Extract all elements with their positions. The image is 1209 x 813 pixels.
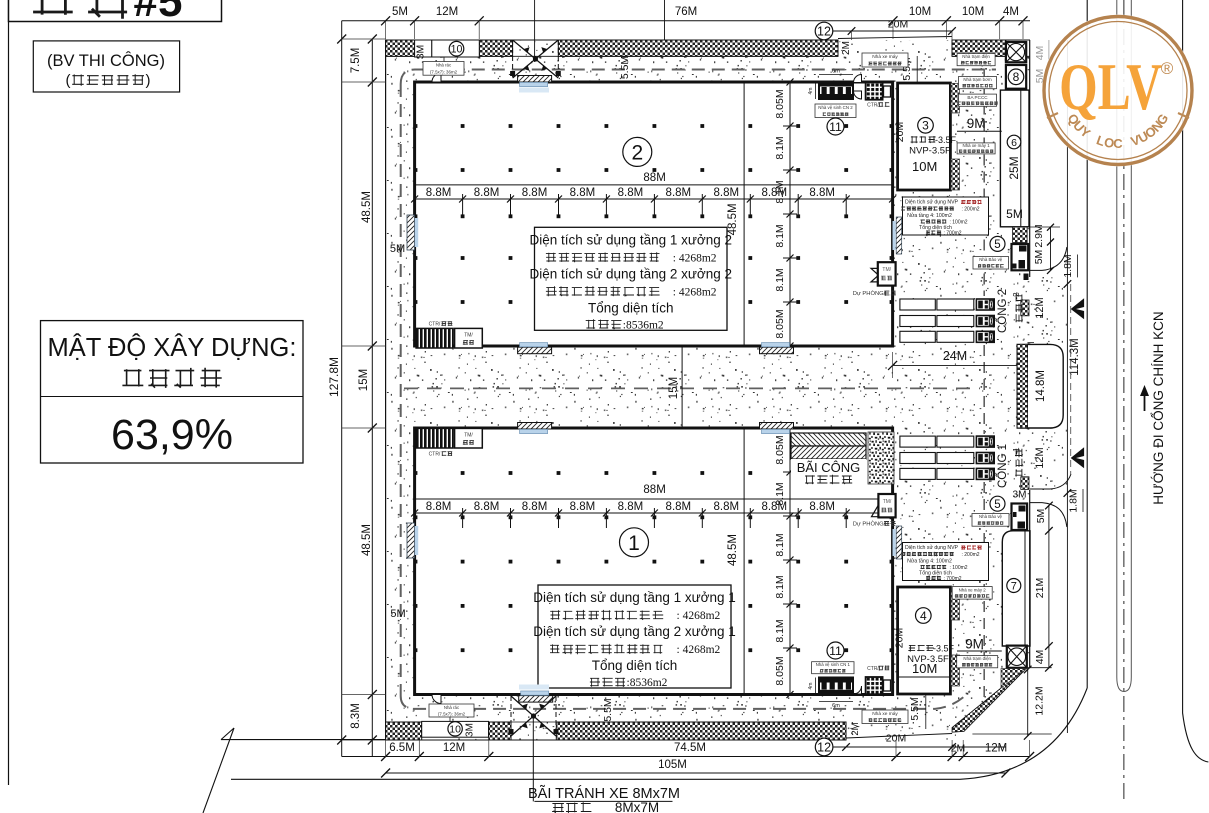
svg-text:8.8M: 8.8M <box>666 501 692 513</box>
svg-text:Diện tích sử dụng NVP: Diện tích sử dụng NVP <box>905 544 959 551</box>
svg-text:21M: 21M <box>1034 578 1046 598</box>
svg-text:Diện tích sử dụng tầng 1 xưởng: Diện tích sử dụng tầng 1 xưởng 1 <box>533 590 736 605</box>
svg-text:48.5M: 48.5M <box>727 534 739 566</box>
svg-text:10M: 10M <box>912 661 937 676</box>
svg-text:10: 10 <box>449 725 461 736</box>
svg-text:BÃI CÔNG: BÃI CÔNG <box>797 460 861 475</box>
svg-text:3M: 3M <box>1013 490 1027 501</box>
svg-text:5: 5 <box>994 499 1000 511</box>
svg-text:12M: 12M <box>985 743 1007 755</box>
svg-text:Nhà trạm điện: Nhà trạm điện <box>962 54 990 59</box>
svg-text:8.1M: 8.1M <box>774 533 786 556</box>
svg-text:12M: 12M <box>436 6 458 18</box>
svg-text:C: C <box>1113 136 1123 151</box>
svg-text:105M: 105M <box>658 759 687 771</box>
svg-text:48.5M: 48.5M <box>727 203 739 235</box>
svg-text:12M: 12M <box>1034 447 1046 468</box>
svg-text:5.5M: 5.5M <box>602 698 614 721</box>
svg-text:(BV THI CÔNG): (BV THI CÔNG) <box>47 51 165 70</box>
svg-text:15M: 15M <box>358 369 370 391</box>
svg-text:20M: 20M <box>894 628 906 648</box>
svg-text:Nhà vệ sinh CN 2: Nhà vệ sinh CN 2 <box>818 105 853 110</box>
svg-text:10M: 10M <box>909 6 931 18</box>
svg-text:25M: 25M <box>1007 156 1021 179</box>
svg-text:8.05M: 8.05M <box>774 435 786 464</box>
svg-text:TM/: TM/ <box>882 267 891 273</box>
svg-text:Diện tích sử dụng tầng 2 xưởng: Diện tích sử dụng tầng 2 xưởng 1 <box>533 624 736 639</box>
svg-text:8.8M: 8.8M <box>426 501 452 513</box>
svg-text:: 700m2: : 700m2 <box>944 576 962 582</box>
svg-text:12M: 12M <box>443 742 465 754</box>
svg-text:8.1M: 8.1M <box>774 575 786 598</box>
svg-text:5.5M: 5.5M <box>619 56 631 79</box>
svg-text:10M: 10M <box>912 159 937 174</box>
svg-text:(7.5x7): 36m2: (7.5x7): 36m2 <box>430 69 458 74</box>
svg-text:CTR/: CTR/ <box>867 666 879 672</box>
svg-text:8Mx7M: 8Mx7M <box>615 800 659 813</box>
svg-text:11: 11 <box>829 644 842 658</box>
svg-text:76M: 76M <box>675 6 697 18</box>
svg-text:6m: 6m <box>832 69 840 75</box>
svg-text:8.1M: 8.1M <box>774 180 786 203</box>
svg-text:Nhà xe máy 1: Nhà xe máy 1 <box>963 143 991 148</box>
svg-text:5M: 5M <box>1035 509 1047 524</box>
svg-text:Nhà Bảo vệ: Nhà Bảo vệ <box>979 257 1003 262</box>
svg-text:3: 3 <box>922 119 929 133</box>
svg-text:24M: 24M <box>943 349 967 363</box>
svg-text:12: 12 <box>817 741 831 755</box>
svg-text:9M: 9M <box>967 116 986 131</box>
svg-text:: 200m2: : 200m2 <box>962 552 980 558</box>
svg-text:8.8M: 8.8M <box>618 501 644 513</box>
svg-text::8536m2: :8536m2 <box>623 319 664 331</box>
svg-text:Nhà xe máy: Nhà xe máy <box>872 54 898 60</box>
svg-text:Nhà rác: Nhà rác <box>444 705 460 710</box>
svg-text:: 4268m2: : 4268m2 <box>673 286 717 298</box>
svg-text:1: 1 <box>628 532 640 555</box>
svg-text:8.1M: 8.1M <box>774 268 786 291</box>
svg-text:12M: 12M <box>1034 297 1046 318</box>
svg-text:8.8M: 8.8M <box>666 187 692 199</box>
svg-text:8.8M: 8.8M <box>618 187 644 199</box>
svg-text:-1: -1 <box>1012 447 1021 455</box>
svg-text:12: 12 <box>817 25 831 39</box>
svg-text:Dự PHÒNG/: Dự PHÒNG/ <box>853 290 886 297</box>
svg-text:2.9M: 2.9M <box>1033 224 1045 247</box>
svg-text:2: 2 <box>631 141 643 164</box>
svg-text:88M: 88M <box>643 172 665 184</box>
svg-text:5: 5 <box>994 239 1000 251</box>
svg-text:12.2M: 12.2M <box>1034 686 1046 715</box>
svg-text:3M: 3M <box>465 723 476 737</box>
svg-text:(: ( <box>66 72 71 89</box>
svg-text:: 4268m2: : 4268m2 <box>677 644 721 656</box>
svg-text:1.8M: 1.8M <box>1068 489 1080 512</box>
svg-text:Diện tích sử dụng tầng 2 xưởng: Diện tích sử dụng tầng 2 xưởng 2 <box>529 266 732 281</box>
svg-text:8.8M: 8.8M <box>522 187 548 199</box>
svg-text:Nhà xe máy: Nhà xe máy <box>872 711 898 717</box>
svg-text:8.8M: 8.8M <box>474 501 500 513</box>
svg-text:CỔNG 1: CỔNG 1 <box>996 444 1009 488</box>
svg-text:4M: 4M <box>1034 650 1046 665</box>
svg-text:: 4268m2: : 4268m2 <box>677 610 721 622</box>
svg-text:5M: 5M <box>1033 250 1045 265</box>
svg-text:Nhà vệ sinh CN 1: Nhà vệ sinh CN 1 <box>816 662 851 667</box>
svg-text:8.05M: 8.05M <box>774 309 786 338</box>
svg-text:4M: 4M <box>1003 6 1019 18</box>
svg-text:Nhà xe máy 2: Nhà xe máy 2 <box>959 587 987 592</box>
svg-text:8.3M: 8.3M <box>350 703 362 729</box>
svg-text:4M: 4M <box>1034 46 1046 61</box>
svg-text:CTR/: CTR/ <box>429 322 441 328</box>
svg-text:48.5M: 48.5M <box>361 191 373 223</box>
svg-text:: 700m2: : 700m2 <box>944 231 962 237</box>
svg-text:20M: 20M <box>886 733 906 745</box>
svg-text:Nhà trạm điện: Nhà trạm điện <box>963 656 991 661</box>
svg-text:8.1M: 8.1M <box>774 619 786 642</box>
svg-text:6: 6 <box>1011 137 1017 149</box>
svg-text:Nửa tầng 4: 100m2: Nửa tầng 4: 100m2 <box>907 212 952 219</box>
svg-text:8.8M: 8.8M <box>426 187 452 199</box>
svg-text:8.8M: 8.8M <box>714 501 740 513</box>
svg-text:TM/: TM/ <box>883 499 892 505</box>
svg-text:HƯỚNG ĐI CỔNG CHÍNH KCN: HƯỚNG ĐI CỔNG CHÍNH KCN <box>1151 311 1166 504</box>
svg-text:6.5M: 6.5M <box>389 742 415 754</box>
svg-text:Diện tích sử dụng tầng 1 xưởng: Diện tích sử dụng tầng 1 xưởng 2 <box>529 232 732 247</box>
svg-text:8.8M: 8.8M <box>522 501 548 513</box>
svg-text:74.5M: 74.5M <box>674 742 706 754</box>
svg-text:5M: 5M <box>390 243 405 255</box>
svg-text:11: 11 <box>829 120 842 134</box>
svg-text:5M: 5M <box>392 6 408 18</box>
svg-text:CTR/: CTR/ <box>429 452 441 458</box>
svg-text:8: 8 <box>1013 70 1020 84</box>
svg-text:8.8M: 8.8M <box>570 501 596 513</box>
svg-text:2M: 2M <box>951 743 966 755</box>
svg-text:6m: 6m <box>832 703 840 709</box>
svg-text:Tổng diện tích: Tổng diện tích <box>592 658 678 673</box>
svg-text:): ) <box>146 72 151 89</box>
svg-text:NVP-3.5F: NVP-3.5F <box>909 146 951 157</box>
svg-text:8.8M: 8.8M <box>809 187 835 199</box>
svg-text:Dự PHÒNG/: Dự PHÒNG/ <box>853 520 886 527</box>
svg-text:4m: 4m <box>808 683 814 690</box>
svg-text:-3.5F: -3.5F <box>933 644 955 654</box>
svg-text:7.5M: 7.5M <box>350 48 362 74</box>
svg-text:8.8M: 8.8M <box>474 187 500 199</box>
svg-text:127.8M: 127.8M <box>327 357 341 397</box>
svg-text:: 100m2: : 100m2 <box>950 565 968 571</box>
svg-text:8.05M: 8.05M <box>774 89 786 118</box>
svg-text:2M: 2M <box>841 41 852 55</box>
svg-text:: 4268m2: : 4268m2 <box>673 252 717 264</box>
svg-text:Diện tích sử dụng NVP: Diện tích sử dụng NVP <box>905 199 959 206</box>
svg-text:1.8M: 1.8M <box>1062 254 1074 277</box>
svg-text:Nhà trạm bơm: Nhà trạm bơm <box>963 77 992 82</box>
svg-text:TM/: TM/ <box>464 332 473 338</box>
svg-text:: 200m2: : 200m2 <box>962 207 980 213</box>
svg-text:8.1M: 8.1M <box>774 224 786 247</box>
svg-text:3M: 3M <box>415 45 427 60</box>
svg-text:#5: #5 <box>134 0 183 26</box>
svg-text:7: 7 <box>1011 580 1017 592</box>
svg-text:: 100m2: : 100m2 <box>950 220 968 226</box>
svg-text:CTR/: CTR/ <box>867 103 879 109</box>
svg-text:63,9%: 63,9% <box>111 411 233 459</box>
svg-text:2M: 2M <box>850 722 861 735</box>
svg-text:20M: 20M <box>888 19 908 31</box>
svg-text:8.8M: 8.8M <box>809 501 835 513</box>
svg-text:Tổng diện tích: Tổng diện tích <box>588 300 674 315</box>
svg-text:-3.5F: -3.5F <box>935 135 957 145</box>
svg-text:9M: 9M <box>965 637 984 652</box>
svg-text:Nhà Bảo vệ: Nhà Bảo vệ <box>979 514 1003 519</box>
svg-text:15M: 15M <box>668 377 680 399</box>
svg-text:88M: 88M <box>643 484 665 496</box>
svg-text:BA PCCC: BA PCCC <box>967 95 988 100</box>
svg-text:5M: 5M <box>1006 207 1023 221</box>
svg-text:10M: 10M <box>962 6 984 18</box>
svg-text:-2: -2 <box>1012 292 1021 300</box>
svg-text:48.5M: 48.5M <box>361 524 373 556</box>
svg-text:8.8M: 8.8M <box>714 187 740 199</box>
svg-text:14.8M: 14.8M <box>1035 370 1047 402</box>
svg-text:8.8M: 8.8M <box>570 187 596 199</box>
svg-text:Nhà rác: Nhà rác <box>436 62 452 67</box>
svg-text:5M: 5M <box>390 608 405 620</box>
svg-text::8536m2: :8536m2 <box>627 677 668 689</box>
svg-text:TM/: TM/ <box>464 432 473 438</box>
svg-text:8.05M: 8.05M <box>774 656 786 685</box>
svg-text:Nửa tầng 4: 100m2: Nửa tầng 4: 100m2 <box>907 558 952 565</box>
svg-text:(7.5x7): 36m2: (7.5x7): 36m2 <box>438 711 466 716</box>
svg-text:MẬT ĐỘ XÂY DỰNG:: MẬT ĐỘ XÂY DỰNG: <box>48 333 297 362</box>
svg-text:®: ® <box>1161 59 1174 78</box>
svg-text:20M: 20M <box>894 122 906 142</box>
svg-text:5.5M: 5.5M <box>909 697 921 720</box>
svg-text:8.1M: 8.1M <box>774 136 786 159</box>
svg-text:10: 10 <box>451 44 463 56</box>
svg-text:CỔNG 2: CỔNG 2 <box>996 289 1009 333</box>
svg-text:4m: 4m <box>808 88 814 95</box>
svg-text:8.1M: 8.1M <box>774 482 786 505</box>
svg-text:4: 4 <box>920 609 927 623</box>
